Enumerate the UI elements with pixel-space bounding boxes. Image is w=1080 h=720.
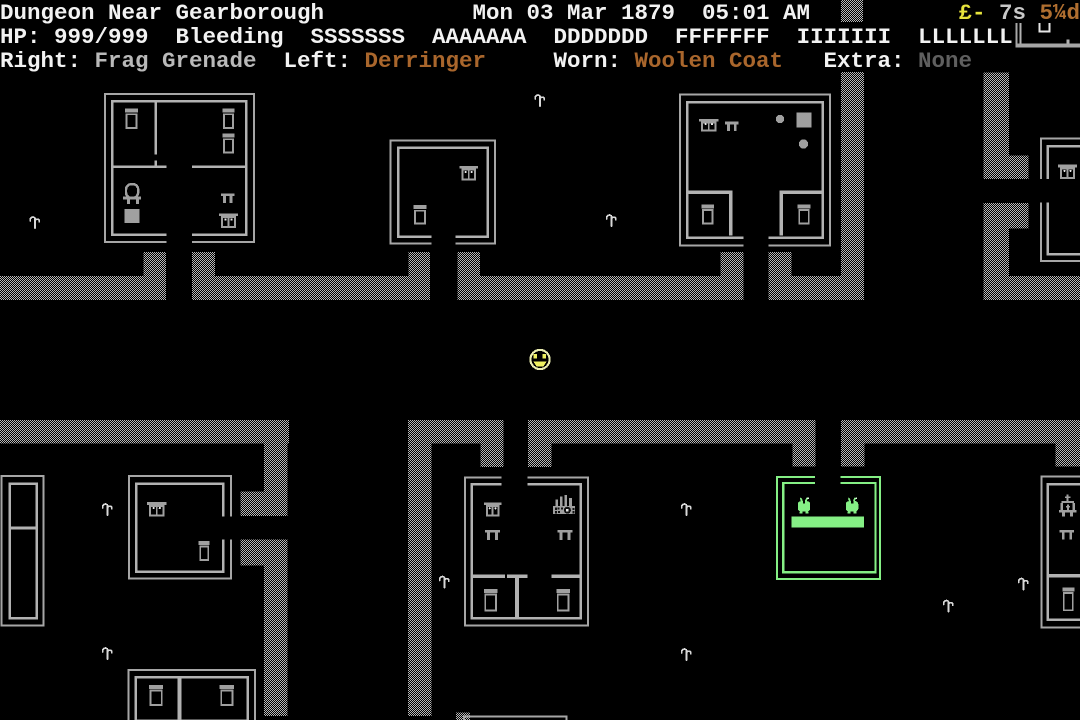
svg-text:Derringer: Derringer — [365, 48, 487, 74]
svg-text:HP: 999/999: HP: 999/999 — [0, 24, 149, 50]
svg-text:Right:: Right: — [0, 48, 81, 74]
svg-text:Extra:: Extra: — [824, 48, 905, 74]
svg-text:£-: £- — [959, 0, 986, 26]
svg-text:Woolen Coat: Woolen Coat — [635, 48, 784, 74]
svg-text:Worn:: Worn: — [554, 48, 622, 74]
svg-text:7s: 7s — [999, 0, 1026, 26]
svg-text:Frag Grenade: Frag Grenade — [95, 48, 257, 74]
svg-text:Left:: Left: — [284, 48, 352, 74]
svg-text:5¼d: 5¼d — [1040, 0, 1080, 26]
svg-text:Dungeon Near Gearborough: Dungeon Near Gearborough — [0, 0, 324, 26]
svg-text:05:01 AM: 05:01 AM — [702, 0, 810, 26]
svg-text:Mon 03 Mar 1879: Mon 03 Mar 1879 — [473, 0, 676, 26]
svg-text:Bleeding: Bleeding — [176, 24, 284, 50]
svg-text:SSSSSSS AAAAAAA DDDDDDD FFF: SSSSSSS AAAAAAA DDDDDDD FFFFFFF IIIIIII … — [311, 24, 1013, 50]
svg-text:None: None — [918, 48, 972, 74]
